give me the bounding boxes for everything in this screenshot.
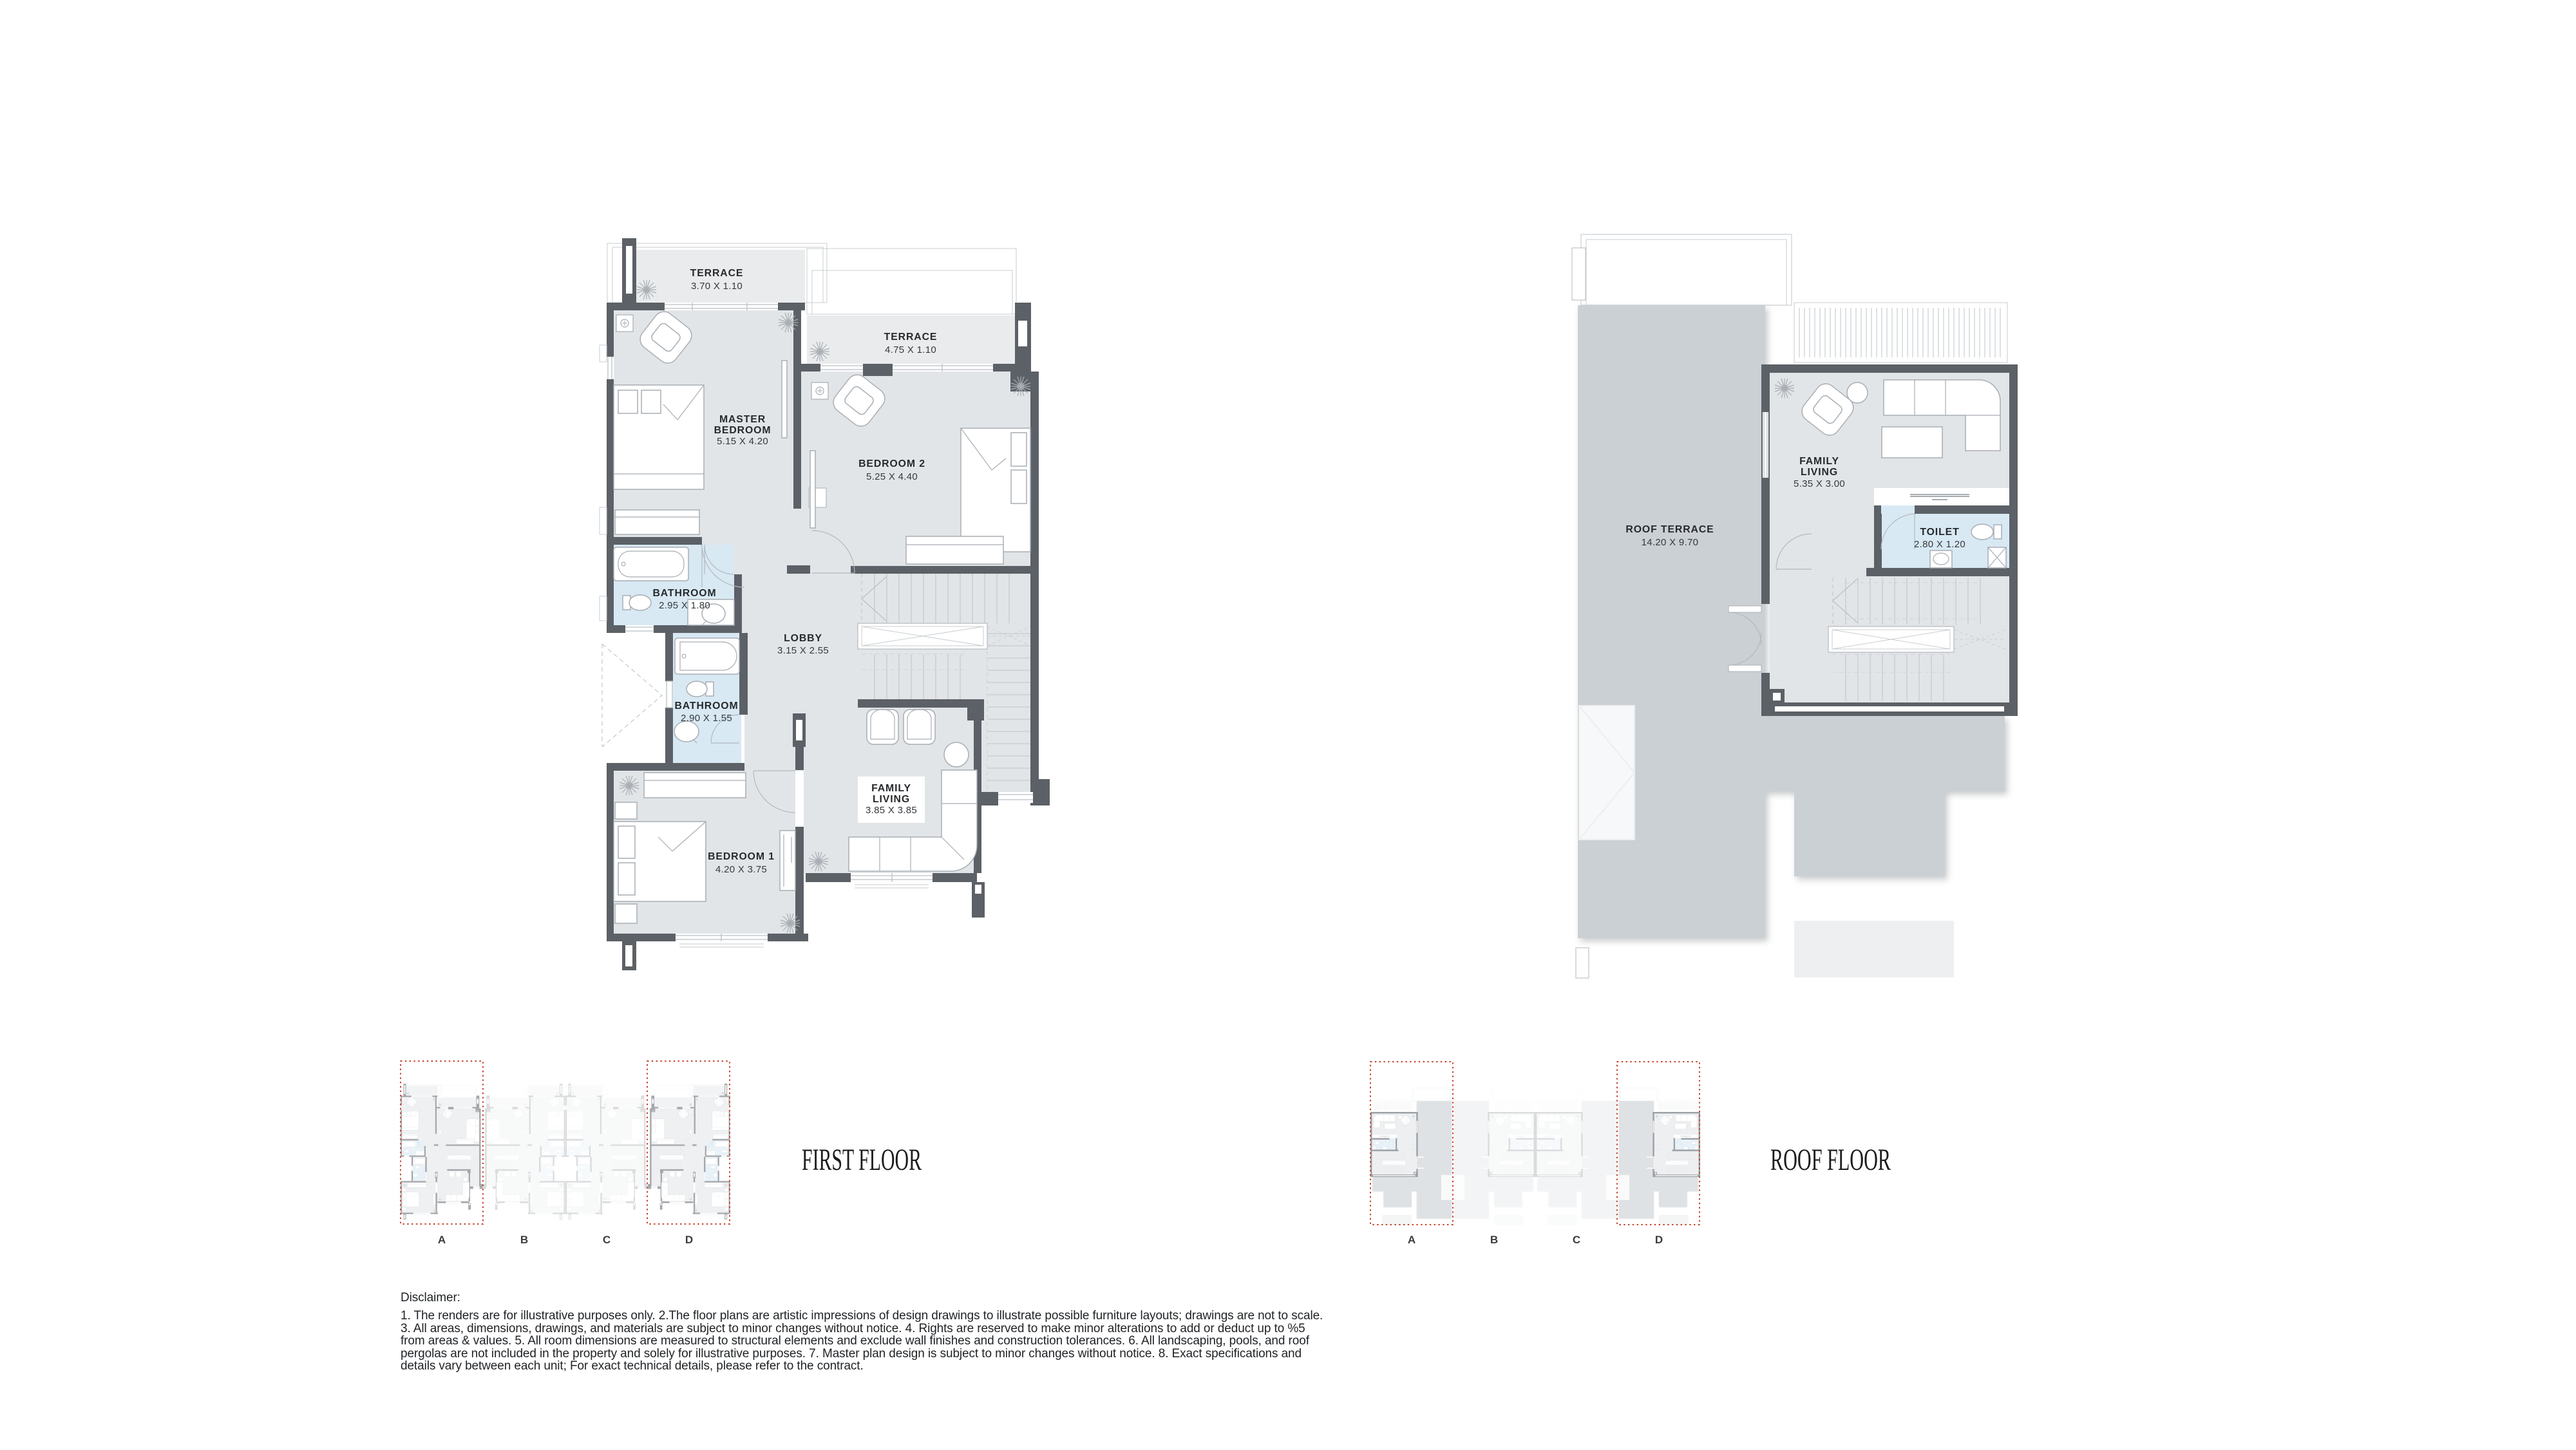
- svg-text:2.80 X 1.20: 2.80 X 1.20: [1914, 539, 1965, 550]
- svg-text:LIVING: LIVING: [1801, 467, 1838, 478]
- svg-text:14.20 X 9.70: 14.20 X 9.70: [1642, 537, 1699, 548]
- svg-text:BEDROOM 2: BEDROOM 2: [858, 458, 925, 469]
- svg-text:LIVING: LIVING: [873, 794, 910, 805]
- svg-text:5.25 X 4.40: 5.25 X 4.40: [866, 471, 918, 482]
- svg-text:A: A: [438, 1234, 446, 1246]
- svg-text:B: B: [1490, 1234, 1498, 1246]
- svg-text:ROOF FLOOR: ROOF FLOOR: [1770, 1143, 1891, 1177]
- svg-text:TOILET: TOILET: [1920, 527, 1959, 538]
- svg-text:5.15 X 4.20: 5.15 X 4.20: [717, 436, 768, 447]
- svg-text:BATHROOM: BATHROOM: [674, 701, 738, 711]
- svg-text:D: D: [685, 1234, 693, 1246]
- svg-text:LOBBY: LOBBY: [784, 633, 822, 644]
- svg-text:FAMILY: FAMILY: [1799, 456, 1839, 467]
- svg-text:2.90 X 1.55: 2.90 X 1.55: [681, 713, 732, 724]
- svg-text:3.85 X 3.85: 3.85 X 3.85: [866, 805, 917, 816]
- svg-text:A: A: [1408, 1234, 1416, 1246]
- svg-text:ROOF TERRACE: ROOF TERRACE: [1625, 524, 1714, 535]
- svg-text:D: D: [1655, 1234, 1663, 1246]
- svg-text:2.95 X 1.80: 2.95 X 1.80: [659, 600, 710, 611]
- svg-text:BEDROOM 1: BEDROOM 1: [708, 851, 775, 862]
- svg-text:4.20 X 3.75: 4.20 X 3.75: [715, 864, 767, 875]
- svg-text:4.75 X 1.10: 4.75 X 1.10: [885, 344, 936, 355]
- svg-text:FAMILY: FAMILY: [871, 783, 911, 794]
- svg-text:C: C: [1573, 1234, 1580, 1246]
- svg-text:BATHROOM: BATHROOM: [652, 588, 716, 599]
- svg-text:C: C: [603, 1234, 611, 1246]
- svg-text:TERRACE: TERRACE: [884, 332, 938, 343]
- svg-text:5.35 X 3.00: 5.35 X 3.00: [1794, 478, 1845, 489]
- svg-text:3.70 X 1.10: 3.70 X 1.10: [691, 281, 743, 292]
- svg-text:B: B: [520, 1234, 528, 1246]
- svg-text:FIRST FLOOR: FIRST FLOOR: [802, 1143, 922, 1177]
- svg-text:MASTER: MASTER: [719, 414, 766, 425]
- svg-text:3.15 X 2.55: 3.15 X 2.55: [777, 645, 829, 656]
- svg-text:BEDROOM: BEDROOM: [714, 425, 772, 436]
- svg-text:TERRACE: TERRACE: [690, 268, 744, 279]
